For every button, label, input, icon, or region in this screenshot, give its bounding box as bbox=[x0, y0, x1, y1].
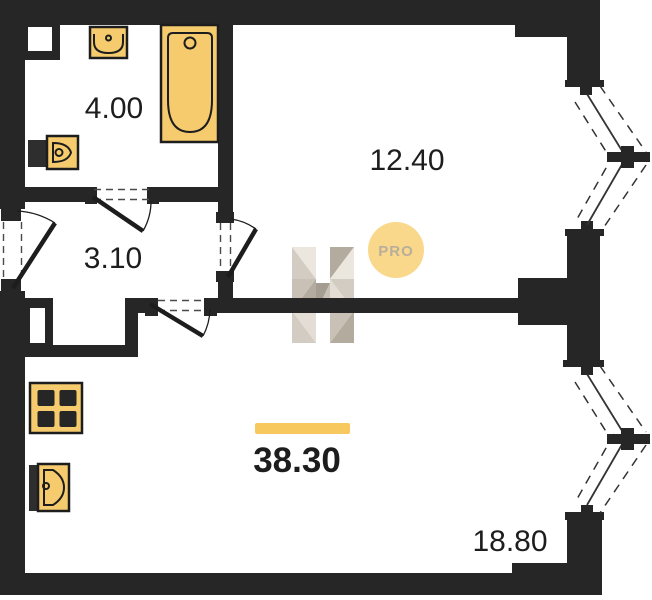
pro-badge-label: PRO bbox=[378, 243, 414, 260]
wall-segment bbox=[0, 573, 567, 595]
total-area-accent-bar bbox=[255, 423, 350, 434]
window-mullion bbox=[621, 146, 634, 168]
window-glass bbox=[587, 374, 624, 434]
window-frame-dash bbox=[600, 165, 646, 233]
floor-plan-canvas: 4.00 3.10 12.40 18.80 38.30 PRO bbox=[0, 0, 652, 600]
door-entry bbox=[4, 211, 56, 288]
area-label-hallway: 3.10 bbox=[84, 242, 142, 275]
bathroom-sink bbox=[90, 27, 127, 58]
door-bathroom bbox=[93, 190, 151, 232]
window-frame-dash bbox=[575, 382, 612, 441]
door-room-top bbox=[221, 219, 257, 277]
door-room-bottom bbox=[150, 301, 210, 337]
bay-window-bottom bbox=[575, 366, 650, 513]
shaft-opening bbox=[30, 308, 45, 343]
window-glass bbox=[587, 94, 624, 154]
window-frame-dash bbox=[600, 86, 646, 152]
window-sill bbox=[565, 229, 604, 236]
stove-burner bbox=[38, 390, 55, 406]
stove bbox=[30, 383, 82, 433]
area-label-room-top: 12.40 bbox=[369, 144, 444, 177]
window-stub bbox=[581, 367, 593, 375]
window-glass bbox=[587, 161, 624, 225]
door-jamb bbox=[204, 298, 217, 316]
bathtub bbox=[161, 25, 218, 142]
wall-segment bbox=[567, 37, 600, 80]
window-sill bbox=[565, 80, 604, 87]
door-swing-arc bbox=[143, 201, 151, 231]
stove-burner bbox=[60, 411, 77, 427]
wall-segment bbox=[518, 278, 570, 325]
window-sill bbox=[563, 360, 604, 367]
wall-segment bbox=[212, 298, 518, 313]
door-leaf bbox=[13, 223, 55, 288]
wall-segment bbox=[512, 563, 567, 595]
shaft-opening bbox=[28, 27, 52, 51]
door-swing-arc bbox=[17, 211, 55, 223]
wall-segment bbox=[567, 519, 602, 595]
window-frame-dash bbox=[575, 102, 612, 161]
door-leaf bbox=[93, 197, 143, 231]
wall-segment bbox=[218, 282, 233, 298]
door-swing-arc bbox=[231, 219, 256, 229]
door-jamb bbox=[216, 212, 234, 223]
stove-burner bbox=[38, 411, 55, 427]
window-glass bbox=[587, 441, 624, 505]
wall-segment bbox=[567, 236, 600, 360]
wall-segment bbox=[0, 0, 25, 209]
wall-segment bbox=[0, 0, 600, 25]
window-frame-dash bbox=[600, 366, 646, 432]
toilet-tank bbox=[28, 140, 47, 167]
wall-segment bbox=[0, 291, 25, 595]
window-stub bbox=[581, 505, 593, 513]
window-frame-dash bbox=[600, 445, 646, 513]
kitchen-sink-back bbox=[29, 465, 38, 511]
bathtub-body bbox=[161, 25, 218, 142]
window-mullion bbox=[621, 428, 634, 450]
area-label-bathroom: 4.00 bbox=[85, 92, 143, 125]
h-watermark bbox=[292, 247, 354, 343]
window-sill bbox=[565, 512, 604, 520]
wall-segment bbox=[515, 0, 600, 37]
door-leaf bbox=[228, 229, 256, 277]
door-leaf bbox=[150, 304, 203, 336]
wall-segment bbox=[25, 187, 93, 202]
toilet bbox=[28, 136, 78, 169]
total-area-label: 38.30 bbox=[253, 441, 341, 480]
area-label-room-bottom: 18.80 bbox=[472, 525, 547, 558]
stove-burner bbox=[60, 390, 77, 406]
bay-window-top bbox=[575, 86, 650, 233]
wall-segment bbox=[218, 25, 233, 212]
pro-badge: PRO bbox=[368, 222, 424, 278]
window-stub bbox=[580, 87, 592, 95]
kitchen-sink bbox=[29, 464, 69, 511]
floor-plan: 4.00 3.10 12.40 18.80 38.30 PRO bbox=[0, 0, 652, 600]
